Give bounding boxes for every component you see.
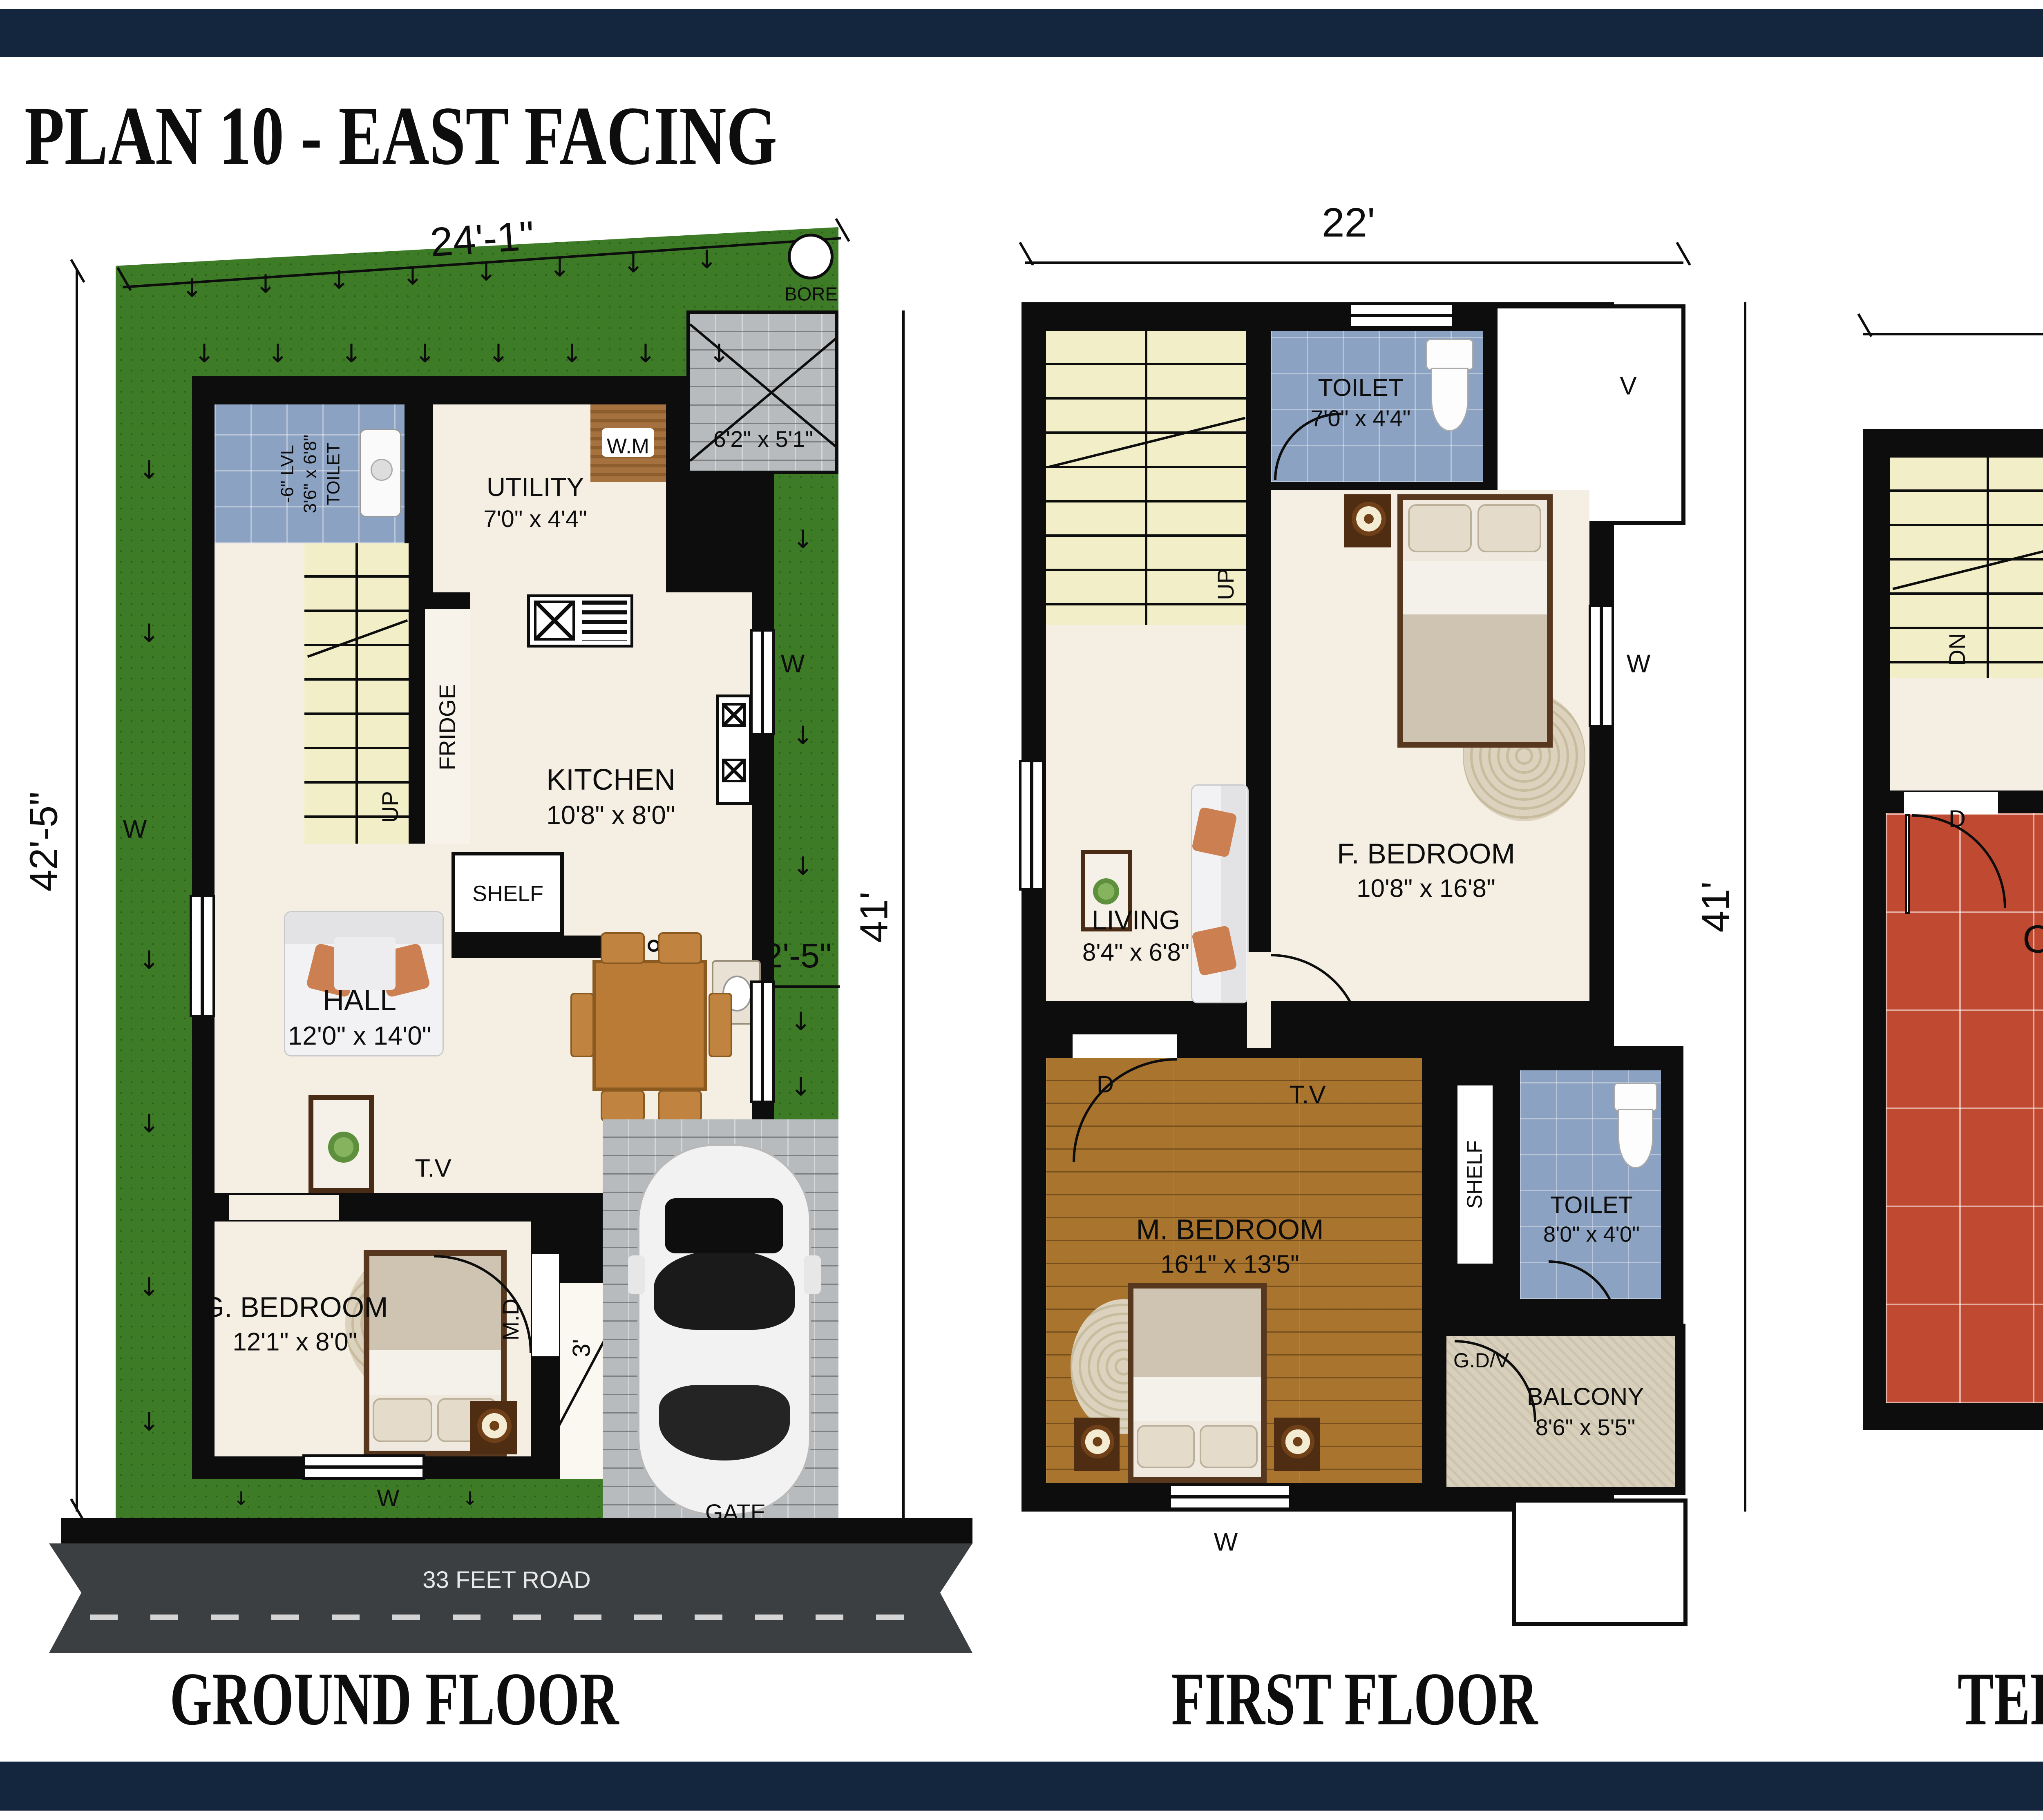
first-window-label-bottom: W xyxy=(1214,1526,1238,1558)
garden-window-label: W xyxy=(377,1483,400,1514)
grass-arrow-icon: ↓ xyxy=(139,455,160,485)
grass-arrow-icon: ↓ xyxy=(476,257,497,287)
ground-floor-title: GROUND FLOOR xyxy=(170,1651,619,1748)
grass-arrow-icon: ↓ xyxy=(488,339,509,368)
window xyxy=(1348,302,1455,328)
dining-table xyxy=(592,960,707,1091)
stove-icon xyxy=(716,695,752,805)
grass-arrow-icon: ↓ xyxy=(341,339,362,368)
shower-icon xyxy=(360,429,401,517)
bed xyxy=(1128,1283,1267,1483)
coffee-table xyxy=(308,1095,374,1193)
first-shelf-label: SHELF xyxy=(1462,1140,1489,1209)
window xyxy=(750,980,775,1103)
first-door-gap xyxy=(1247,952,1271,1048)
grass-arrow-icon: ↓ xyxy=(549,253,570,283)
window xyxy=(750,629,775,735)
m-bedroom-label: M. BEDROOM 16'1" x 13'5" xyxy=(1136,1212,1324,1281)
grass-arrow-icon: ↓ xyxy=(194,339,215,368)
grass-arrow-icon: ↓ xyxy=(139,1407,160,1437)
sofa xyxy=(1191,784,1249,1003)
page-title: PLAN 10 - EAST FACING xyxy=(25,88,777,184)
road-label: 33 FEET ROAD xyxy=(422,1565,591,1595)
kitchen-label: KITCHEN 10'8" x 8'0" xyxy=(546,761,675,832)
grass-arrow-icon: ↓ xyxy=(790,1007,811,1036)
ground-tv-label: T.V xyxy=(415,1152,452,1184)
grass-arrow-icon: ↓ xyxy=(139,619,160,648)
window xyxy=(1169,1484,1291,1510)
first-toilet-right-label: TOILET 8'0" x 4'0" xyxy=(1543,1190,1640,1248)
toilet-fixture-icon xyxy=(1431,368,1469,431)
grass-arrow-icon: ↓ xyxy=(255,269,276,299)
grass-arrow-icon: ↓ xyxy=(790,1072,811,1102)
grass-arrow-icon: ↓ xyxy=(329,265,350,295)
mbed-door-gap xyxy=(1073,1034,1177,1058)
toilet-fixture-icon xyxy=(1618,1109,1653,1168)
window xyxy=(190,895,215,1017)
ground-utility-label: UTILITY 7'0" x 4'4" xyxy=(483,471,587,534)
living-label: LIVING 8'4" x 6'8" xyxy=(1082,902,1189,968)
dining-chair xyxy=(601,932,645,964)
washing-machine-label: W.M xyxy=(607,433,649,460)
porch-dim-label: 3' xyxy=(566,1339,598,1358)
window xyxy=(1589,605,1614,727)
ground-dim-right: 41' xyxy=(849,891,900,942)
road xyxy=(49,1543,972,1653)
toilet-fixture-icon xyxy=(1614,1083,1657,1111)
lamp-icon xyxy=(1081,1425,1114,1458)
ground-shelf-label: SHELF xyxy=(472,880,543,908)
ground-dim-strip-line xyxy=(774,985,840,988)
terrace-stair-landing xyxy=(1890,678,2043,791)
ground-up-label: UP xyxy=(376,791,405,823)
grass-arrow-icon: ↓ xyxy=(233,1487,249,1510)
first-tv-label: T.V xyxy=(1289,1079,1326,1111)
road-center-line xyxy=(90,1615,932,1620)
dining-bench xyxy=(709,993,732,1057)
lamp-icon xyxy=(1281,1425,1314,1458)
f-bedroom-label: F. BEDROOM 10'8" x 16'8" xyxy=(1337,836,1515,905)
grass-arrow-icon: ↓ xyxy=(792,851,814,881)
bore-well-icon xyxy=(788,234,834,279)
ground-dim-strip: 2'-5" xyxy=(763,934,832,978)
ground-pad-size: 6'2" x 5'1" xyxy=(713,424,814,454)
first-vent-label: V xyxy=(1620,370,1636,402)
ground-dim-left-line xyxy=(76,270,78,1512)
first-dim-right: 41' xyxy=(1691,881,1741,932)
ground-dim-right-line xyxy=(902,310,905,1540)
lamp-icon xyxy=(1352,502,1386,536)
bed xyxy=(1397,494,1553,748)
first-open-void-bottom xyxy=(1512,1498,1688,1626)
first-dim-top-line xyxy=(1025,261,1683,264)
porch-steps xyxy=(560,1283,603,1479)
bottom-border-bar xyxy=(0,1762,2043,1811)
lamp-icon xyxy=(477,1409,512,1443)
grass-arrow-icon: ↓ xyxy=(696,245,718,275)
first-floor-title: FIRST FLOOR xyxy=(1171,1651,1538,1748)
main-door-gap xyxy=(532,1254,559,1356)
gbed-door-gap xyxy=(229,1195,339,1220)
garden-window-label: W xyxy=(123,813,147,845)
grass-arrow-icon: ↓ xyxy=(792,525,814,554)
plinth-band xyxy=(61,1518,972,1543)
kitchen-sink-icon xyxy=(527,594,633,648)
toilet-fixture-icon xyxy=(1426,339,1473,370)
hall-label: HALL 12'0" x 14'0" xyxy=(288,982,431,1053)
grass-arrow-icon: ↓ xyxy=(623,249,644,279)
garden-window-label: W xyxy=(781,648,805,680)
grass-arrow-icon: ↓ xyxy=(402,261,423,291)
mbed-door-label: D xyxy=(1097,1070,1114,1100)
window xyxy=(302,1454,425,1480)
grass-arrow-icon: ↓ xyxy=(709,339,730,368)
balcony-label: BALCONY 8'6" x 5'5" xyxy=(1527,1381,1644,1442)
dining-bench xyxy=(570,993,594,1057)
balcony-door-label: G.D/V xyxy=(1453,1347,1509,1373)
terrace-door-leaf xyxy=(1905,814,1910,914)
grass-arrow-icon: ↓ xyxy=(139,1272,160,1302)
floor-plan-sheet: PLAN 10 - EAST FACING 24'-1" BORE 6'2" x… xyxy=(0,0,2043,1820)
open-terrace-label: OPEN TERRACE xyxy=(2023,915,2043,965)
grass-arrow-icon: ↓ xyxy=(792,721,814,750)
terrace-door-label: D xyxy=(1949,804,1966,834)
main-door-label: M.D xyxy=(496,1299,525,1341)
window xyxy=(1019,760,1044,891)
first-window-label-right: W xyxy=(1627,648,1651,680)
grass-arrow-icon: ↓ xyxy=(635,339,656,368)
top-border-bar xyxy=(0,9,2043,57)
dining-chair xyxy=(658,1090,702,1122)
grass-arrow-icon: ↓ xyxy=(139,1109,160,1139)
grass-arrow-icon: ↓ xyxy=(462,1487,478,1510)
first-dim-right-line xyxy=(1744,302,1746,1512)
first-up-label: UP xyxy=(1211,568,1241,600)
ground-dim-left: 42'-5" xyxy=(19,792,69,892)
g-bedroom-label: G. BEDROOM 12'1" x 8'0" xyxy=(202,1289,388,1358)
dining-chair xyxy=(658,932,702,964)
bore-label: BORE xyxy=(785,282,838,306)
ground-pad-window-label: W xyxy=(745,477,769,508)
first-dim-top: 22' xyxy=(1322,197,1375,249)
car-icon xyxy=(637,1144,811,1516)
dining-chair xyxy=(601,1090,645,1122)
fridge-label: FRIDGE xyxy=(433,684,462,770)
grass-arrow-icon: ↓ xyxy=(561,339,583,368)
grass-arrow-icon: ↓ xyxy=(414,339,436,368)
ground-toilet-label: -6" LVL 3'6" x 6'8" TOILET xyxy=(276,435,345,513)
terrace-floor-title: TERRACE FLOOR xyxy=(1958,1651,2043,1748)
terrace-dn-label: DN xyxy=(1942,633,1972,666)
terrace-dim-top-line xyxy=(1863,333,2043,335)
grass-arrow-icon: ↓ xyxy=(181,273,203,303)
grass-arrow-icon: ↓ xyxy=(267,339,288,368)
grass-arrow-icon: ↓ xyxy=(139,945,160,975)
